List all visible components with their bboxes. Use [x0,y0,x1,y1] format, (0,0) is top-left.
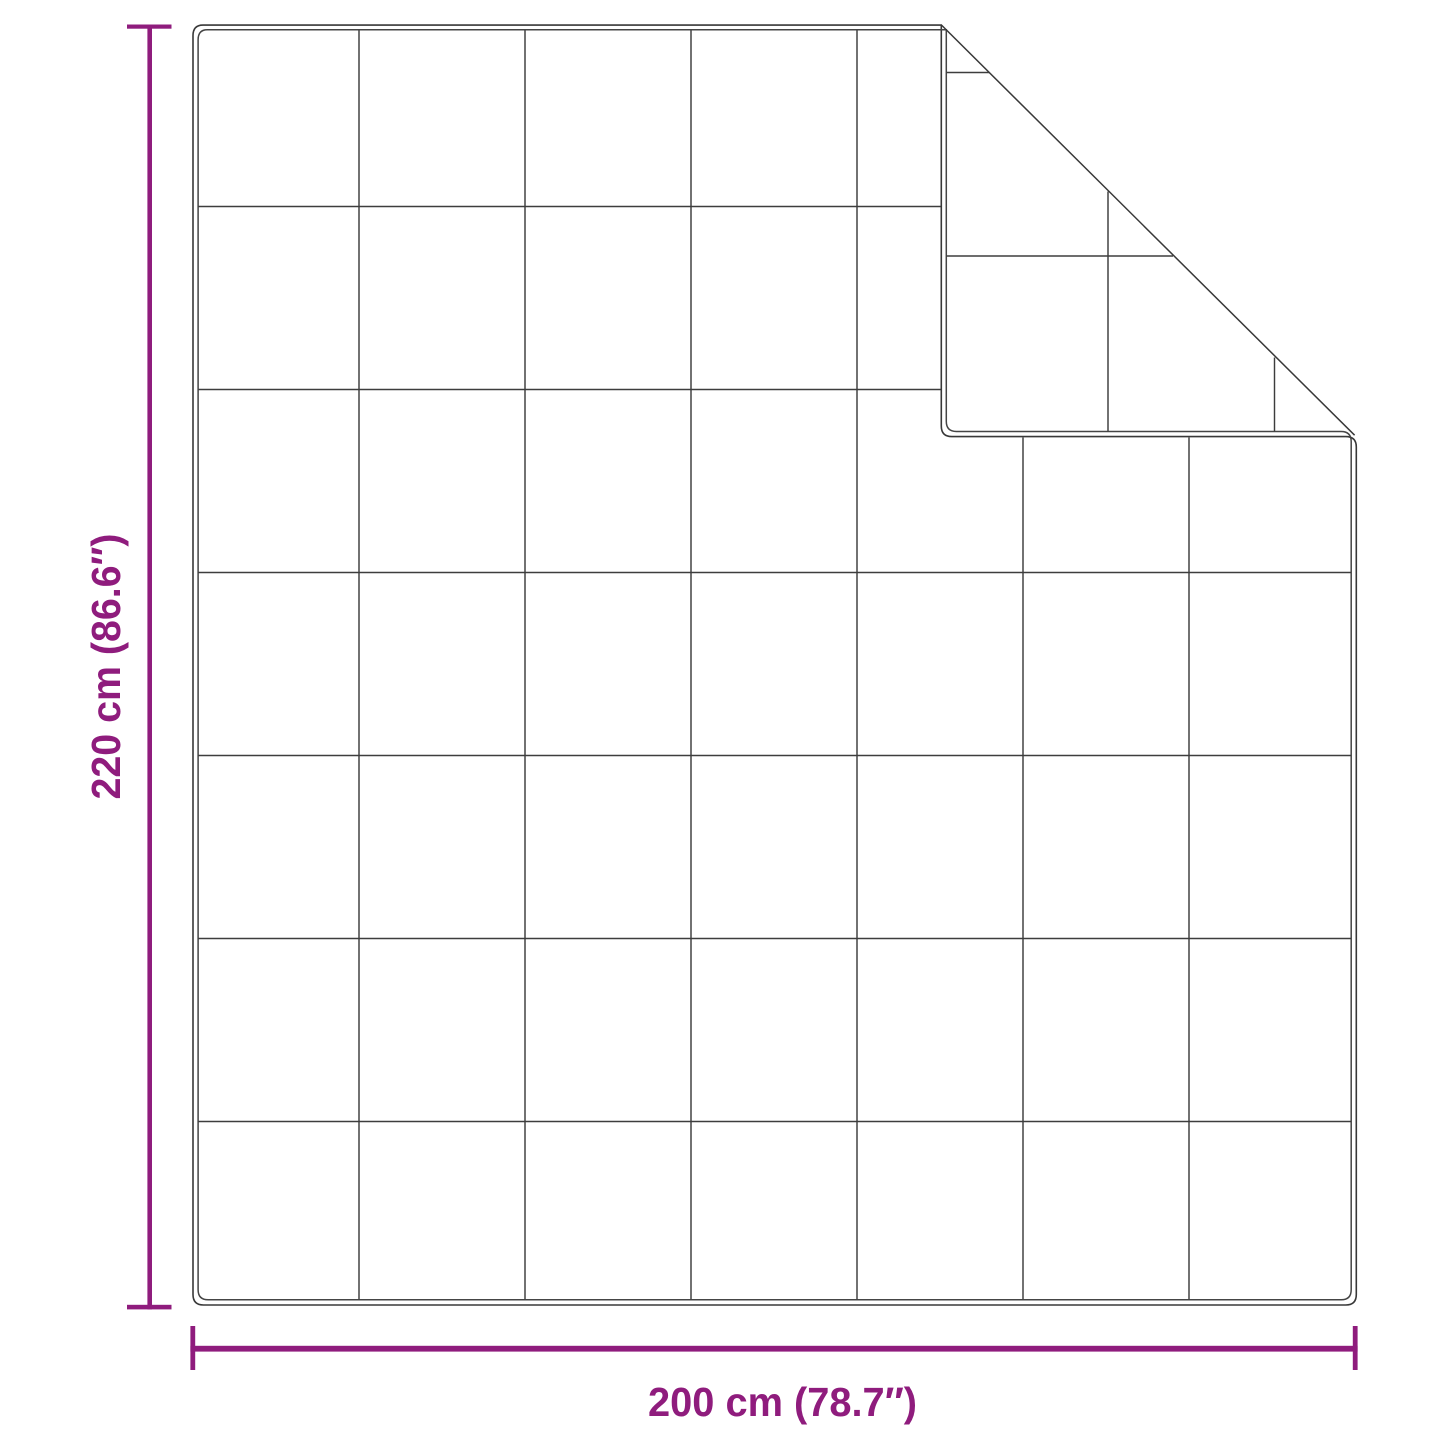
svg-text:200 cm (78.7″): 200 cm (78.7″) [648,1379,917,1425]
svg-text:220 cm (86.6″): 220 cm (86.6″) [83,534,129,800]
